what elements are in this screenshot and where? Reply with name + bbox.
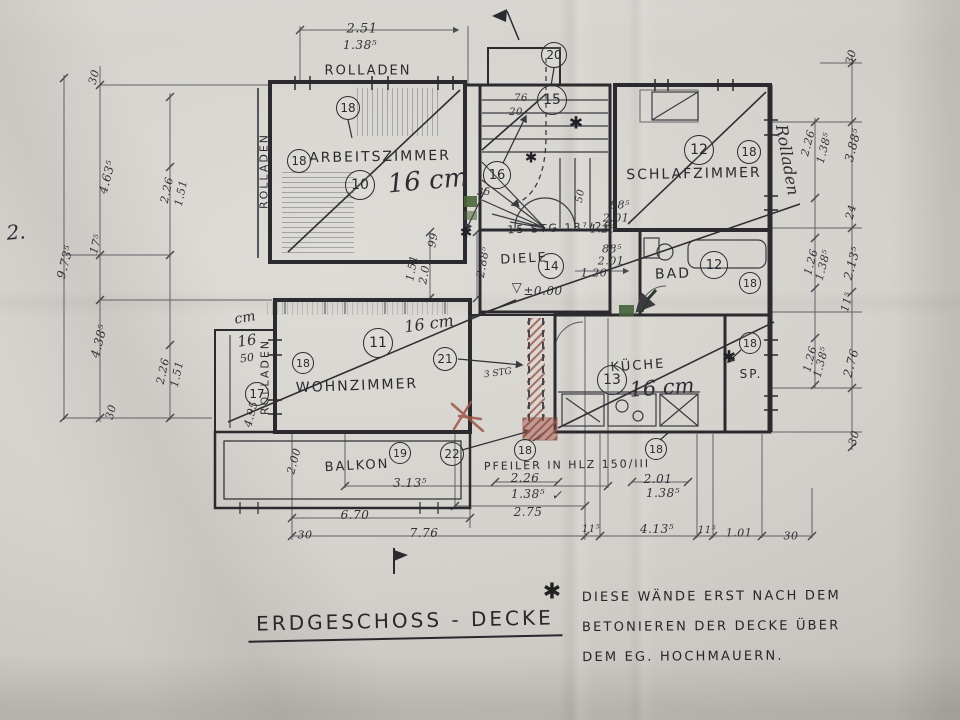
position-bubble: 18: [336, 96, 360, 120]
position-bubble: 18: [737, 140, 761, 164]
position-bubble: 18: [514, 439, 536, 461]
position-bubble: 13: [597, 365, 627, 395]
position-bubble: 12: [684, 135, 714, 165]
position-bubble: 18: [739, 332, 761, 354]
position-bubble: 20: [541, 42, 567, 68]
position-bubble: 21: [433, 347, 457, 371]
construction-note: DIESE WÄNDE ERST NACH DEM BETONIEREN DER…: [582, 581, 893, 673]
position-bubble: 14: [538, 253, 564, 279]
note-line: DEM EG. HOCHMAUERN.: [582, 641, 892, 673]
note-line: BETONIEREN DER DECKE ÜBER: [582, 611, 892, 643]
note-line: DIESE WÄNDE ERST NACH DEM: [582, 581, 892, 613]
position-bubble: 19: [389, 442, 411, 464]
position-bubble: 12: [700, 251, 728, 279]
position-bubble: 15: [537, 85, 567, 115]
asterisk-icon: ✱: [543, 580, 561, 605]
position-bubble: 18: [739, 272, 761, 294]
floor-plan-sheet: ROLLADENROLLADENROLLADENARBEITSZIMMERSCH…: [0, 0, 960, 720]
sheet-title: ERDGESCHOSS - DECKE: [248, 605, 562, 643]
position-bubble: 18: [292, 352, 314, 374]
position-bubble: 18: [645, 438, 667, 460]
position-bubble: 16: [483, 161, 511, 189]
position-bubble: 17: [245, 382, 269, 406]
position-bubble: 10: [345, 170, 375, 200]
position-bubble: 11: [363, 328, 393, 358]
position-bubble: 18: [287, 149, 311, 173]
position-bubble: 22: [440, 442, 464, 466]
